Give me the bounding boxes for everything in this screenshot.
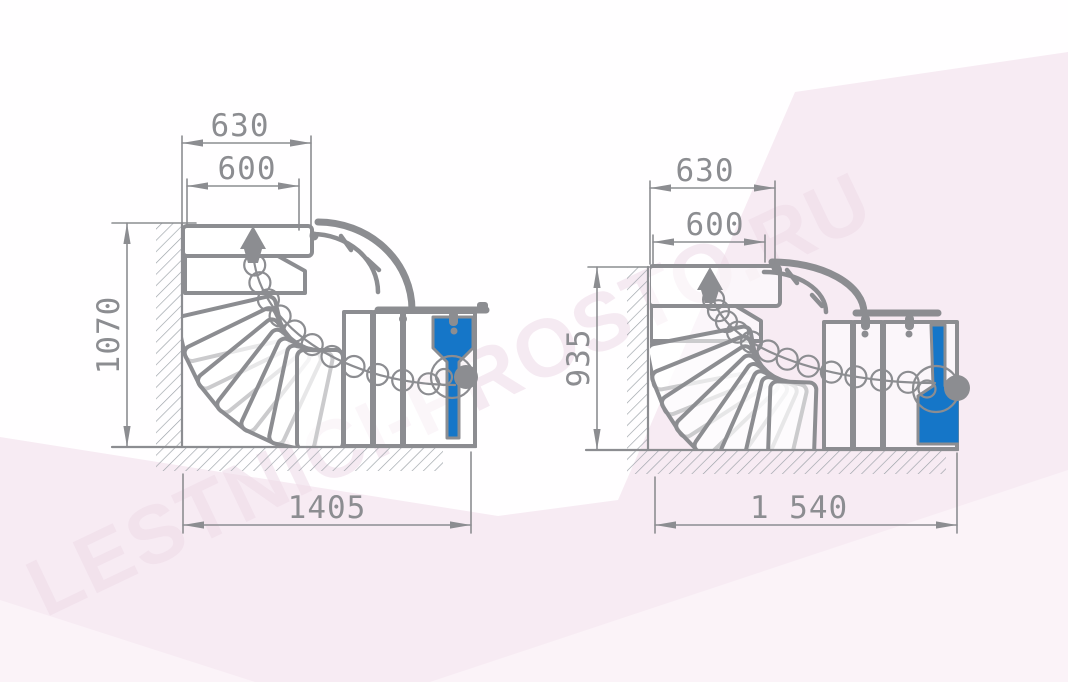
dim-label-top-outer: 630 (676, 153, 735, 189)
staircase-drawing-canvas: LESTNICI-PROSTO.RU (0, 0, 1068, 682)
step (824, 322, 852, 449)
newel-ball (944, 375, 970, 401)
dim-label-bottom-width: 1 540 (750, 490, 848, 526)
baluster-hanger (905, 315, 914, 330)
drawing-page: LESTNICI-PROSTO.RU (0, 0, 1068, 682)
baluster-dot (906, 331, 913, 338)
dim-label-bottom-width: 1405 (288, 490, 367, 526)
baluster-hanger (449, 311, 458, 326)
dim-label-height: 1070 (91, 296, 127, 375)
baluster-dot (772, 264, 781, 273)
handrail-end-cap (477, 302, 488, 312)
baluster-dot (399, 315, 407, 323)
dim-label-top-inner: 600 (686, 207, 745, 243)
dim-label-top-outer: 630 (211, 108, 270, 144)
dim-label-top-inner: 600 (218, 151, 277, 187)
baluster-hanger (861, 315, 870, 330)
step (854, 322, 882, 449)
baluster-dot (310, 232, 319, 241)
baluster-dot (451, 328, 458, 335)
baluster-dot (862, 331, 869, 338)
dim-label-height: 935 (561, 329, 597, 388)
newel-ball (454, 365, 478, 389)
